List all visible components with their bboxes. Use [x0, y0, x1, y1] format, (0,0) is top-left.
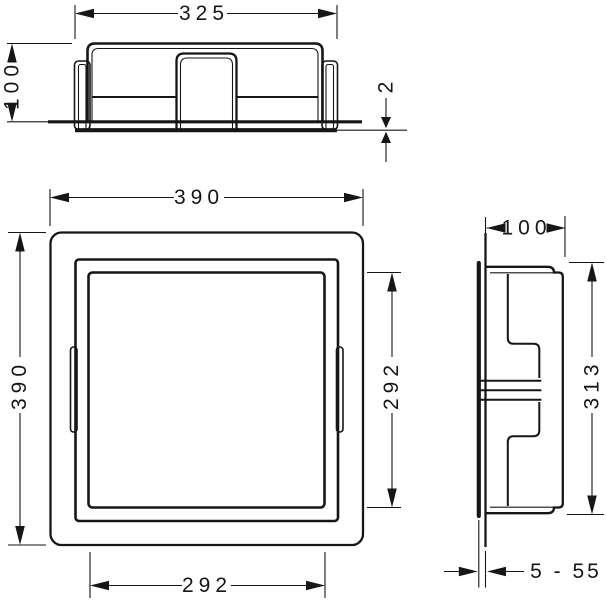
dim-label-top-width: 325	[179, 2, 229, 25]
dim-frame-protrusion: 2	[375, 77, 398, 162]
dim-top-depth: 100	[1, 44, 73, 122]
dim-label-side-depth: 100	[501, 217, 551, 240]
dim-top-width: 325	[75, 2, 337, 39]
arrowhead	[50, 193, 69, 203]
top-view-body-outline	[88, 44, 323, 122]
arrowhead	[487, 567, 506, 577]
front-view-frame-outline	[76, 260, 339, 522]
dim-front-height: 390	[8, 233, 46, 546]
arrowhead	[7, 44, 17, 63]
arrowhead	[318, 9, 337, 19]
technical-drawing-page: 325 100 2 390 390	[0, 0, 606, 600]
dim-label-opening-height: 292	[380, 360, 403, 410]
dim-label-top-depth: 100	[1, 60, 24, 110]
side-view-interior-upper-profile	[508, 274, 540, 378]
top-view-right-clip-inner	[326, 65, 334, 130]
arrowhead	[381, 132, 391, 143]
front-view-flange-outline	[51, 233, 364, 546]
dim-adjust-range: 5 - 55	[444, 560, 602, 583]
arrowhead	[587, 496, 597, 515]
side-view	[477, 217, 563, 588]
front-view	[51, 233, 364, 546]
top-view	[7, 44, 407, 131]
technical-drawing-canvas: 325 100 2 390 390	[0, 0, 606, 600]
top-view-left-clip-inner	[79, 65, 87, 130]
arrowhead	[90, 581, 109, 591]
arrowhead	[587, 263, 597, 282]
dim-label-side-height: 313	[581, 359, 604, 409]
top-view-center-tab	[177, 54, 237, 130]
dim-label-adjust-range: 5 - 55	[530, 560, 602, 583]
dim-opening-width: 292	[90, 552, 325, 598]
top-view-right-clip	[322, 61, 338, 130]
arrowhead	[459, 567, 478, 577]
dim-label-front-width: 390	[174, 186, 224, 209]
front-view-opening-outline	[89, 273, 325, 508]
arrowhead	[381, 117, 391, 128]
top-view-center-tab-inner	[181, 58, 233, 130]
dim-label-opening-width: 292	[182, 574, 232, 597]
arrowhead	[15, 233, 25, 252]
arrowhead	[306, 581, 325, 591]
arrowhead	[387, 273, 397, 292]
arrowhead	[387, 489, 397, 508]
dim-opening-height: 292	[367, 273, 403, 508]
dim-side-height: 313	[567, 263, 604, 515]
top-view-body-inner-line	[92, 49, 318, 122]
dim-label-front-height: 390	[8, 360, 31, 410]
dim-front-width: 390	[50, 186, 363, 226]
arrowhead	[15, 526, 25, 545]
arrowhead	[344, 193, 363, 203]
dim-label-protrusion: 2	[375, 77, 398, 94]
dim-side-depth: 100	[487, 216, 566, 257]
arrowhead	[75, 9, 94, 19]
side-view-interior-lower-profile	[508, 402, 540, 506]
